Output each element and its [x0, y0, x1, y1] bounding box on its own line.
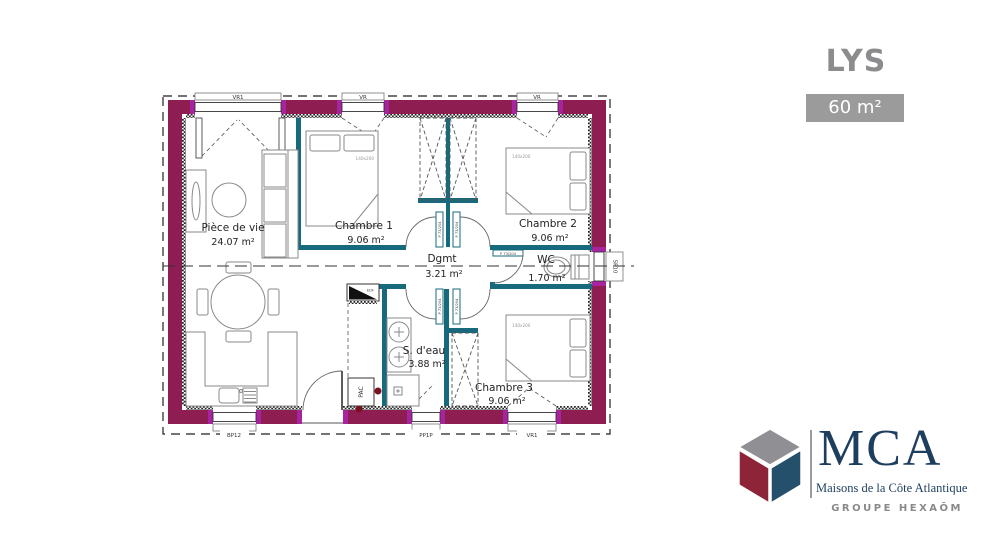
brand-divider [810, 430, 812, 498]
dining-table [197, 262, 279, 342]
pipe-dot [375, 388, 382, 395]
brand-logo-text: MCA [818, 420, 942, 477]
heat-pump-label: PAC [358, 386, 365, 397]
furniture [186, 131, 590, 406]
entrance-door [303, 371, 342, 410]
room-area-salle-deau: 3.88 m² [408, 359, 445, 370]
bed-size-chambre-3: 140x200 [512, 323, 531, 328]
coffee-table [212, 183, 246, 217]
room-label-chambre-1: Chambre 1 [335, 220, 393, 232]
room-area-chambre-2: 9.06 m² [531, 233, 568, 244]
door-size: P 73/204 [438, 221, 442, 238]
bed-size-chambre-1: 140x200 [356, 156, 375, 161]
room-area-wc: 1.70 m² [528, 273, 565, 284]
room-area-chambre-3: 9.06 m² [488, 396, 525, 407]
door-size: P 73/204 [500, 252, 517, 256]
equipment: EDF PAC [347, 284, 382, 413]
room-area-chambre-1: 9.06 m² [347, 235, 384, 246]
opening-label-bp12: BP12 [227, 433, 241, 439]
opening-label-pp1p: PP1P [419, 433, 433, 439]
room-area-degagement: 3.21 m² [425, 269, 462, 280]
bed-size-chambre-2: 140x200 [512, 154, 531, 159]
window-swings [202, 118, 558, 406]
french-door-leaf [196, 118, 202, 158]
mca-logo-cube [733, 423, 813, 508]
room-label-degagement: Dgmt [427, 253, 456, 265]
electrical-label: EDF [367, 289, 374, 293]
room-label-chambre-3: Chambre 3 [475, 382, 533, 394]
interior-doors [406, 212, 523, 324]
room-label-piece-de-vie: Pièce de vie [201, 222, 264, 234]
room-label-wc: WC [537, 254, 555, 266]
room-label-salle-deau: S. d'eau [403, 345, 445, 357]
bed-chambre-1 [306, 131, 378, 226]
door-size: P 73/204 [455, 221, 459, 238]
door-size: P 73/204 [455, 298, 459, 315]
plan-sheet: LYS 60 m² [0, 0, 1000, 554]
kitchen-counter [186, 332, 297, 406]
opening-label-sp10: SP10 [612, 260, 618, 274]
room-label-chambre-2: Chambre 2 [519, 218, 577, 230]
shower [387, 375, 419, 406]
brand-tagline: Maisons de la Côte Atlantique [816, 481, 967, 496]
opening-label-vr-ch1: VR [359, 95, 367, 101]
pipe-dot [356, 406, 363, 413]
sofa [262, 150, 298, 258]
room-area-piece-de-vie: 24.07 m² [211, 237, 254, 248]
opening-label-vr-ch2: VR [533, 95, 541, 101]
brand-group-name: GROUPE HEXAŌM [815, 503, 963, 514]
opening-label-vr1-top: VR1 [232, 95, 243, 101]
opening-label-vr1-bottom: VR1 [526, 433, 537, 439]
door-size: P 73/204 [438, 298, 442, 315]
